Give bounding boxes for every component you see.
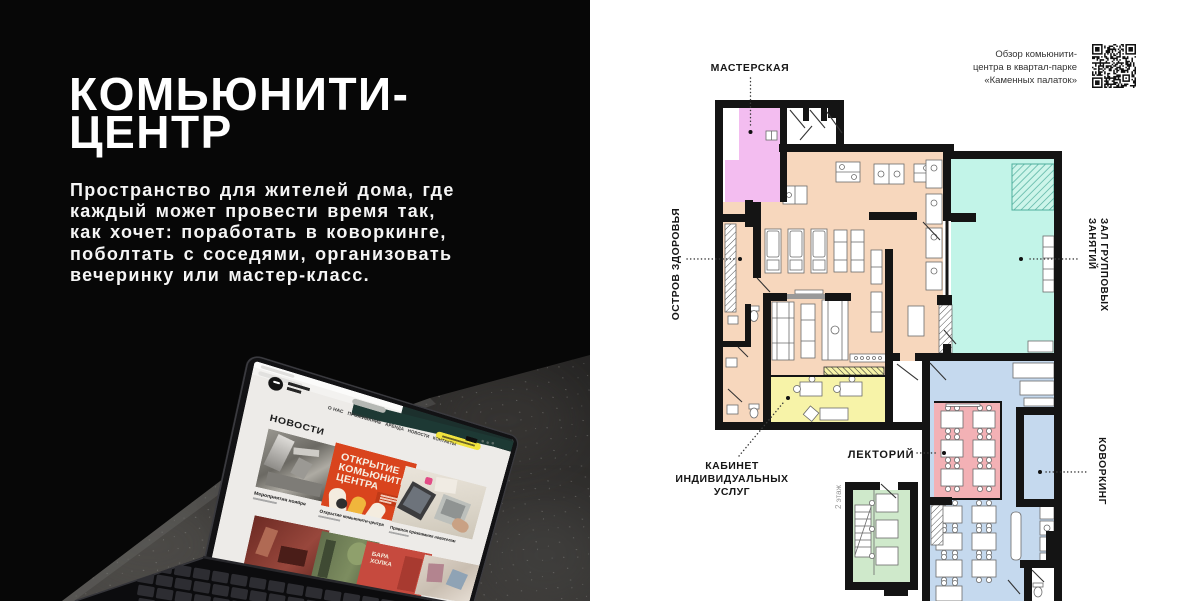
svg-text:ЗАЛ ГРУППОВЫХ: ЗАЛ ГРУППОВЫХ — [1098, 218, 1109, 312]
svg-text:ОСТРОВ ЗДОРОВЬЯ: ОСТРОВ ЗДОРОВЬЯ — [671, 208, 682, 320]
svg-text:ИНДИВИДУАЛЬНЫХ: ИНДИВИДУАЛЬНЫХ — [675, 473, 788, 485]
svg-text:КАБИНЕТ: КАБИНЕТ — [705, 460, 759, 472]
svg-text:МАСТЕРСКАЯ: МАСТЕРСКАЯ — [711, 62, 790, 74]
svg-text:ЗАНЯТИЙ: ЗАНЯТИЙ — [1086, 218, 1098, 270]
svg-text:Обзор комьюнити-: Обзор комьюнити- — [995, 49, 1077, 60]
svg-text:КОВОРКИНГ: КОВОРКИНГ — [1096, 437, 1107, 505]
svg-text:ЛЕКТОРИЙ: ЛЕКТОРИЙ — [848, 448, 915, 461]
svg-text:УСЛУГ: УСЛУГ — [714, 486, 750, 498]
svg-text:2 этаж: 2 этаж — [834, 484, 843, 509]
svg-text:центра в квартал-парке: центра в квартал-парке — [973, 62, 1077, 73]
svg-text:«Каменных палаток»: «Каменных палаток» — [984, 75, 1077, 86]
